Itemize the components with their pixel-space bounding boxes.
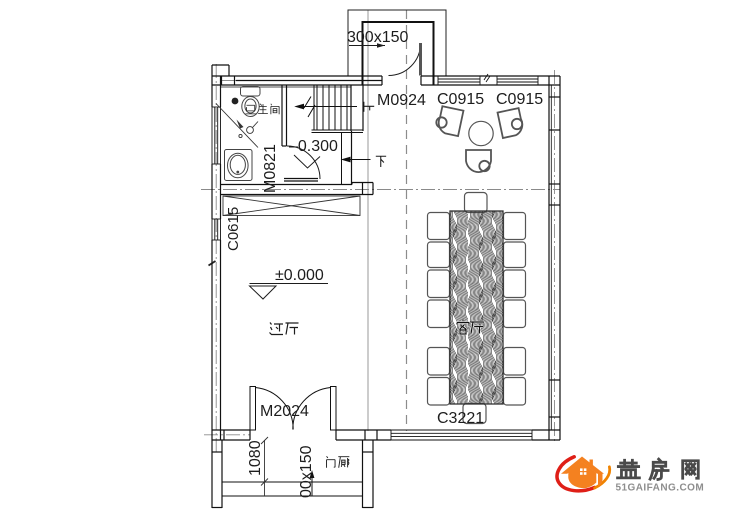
svg-text:300x150: 300x150	[347, 29, 408, 46]
svg-text:C0915: C0915	[437, 91, 484, 108]
svg-text:M0821: M0821	[262, 144, 279, 193]
svg-text:C0615: C0615	[225, 207, 242, 251]
svg-text:M2024: M2024	[260, 403, 309, 420]
svg-text:±0.000: ±0.000	[275, 267, 324, 284]
svg-text:00x150: 00x150	[298, 445, 315, 498]
svg-text:M0924: M0924	[377, 92, 426, 109]
svg-text:–0.300: –0.300	[289, 138, 338, 155]
svg-text:1080: 1080	[247, 440, 264, 476]
svg-text:C3221: C3221	[437, 410, 484, 427]
svg-text:51GAIFANG.COM: 51GAIFANG.COM	[616, 483, 705, 494]
svg-text:C0915: C0915	[496, 91, 543, 108]
